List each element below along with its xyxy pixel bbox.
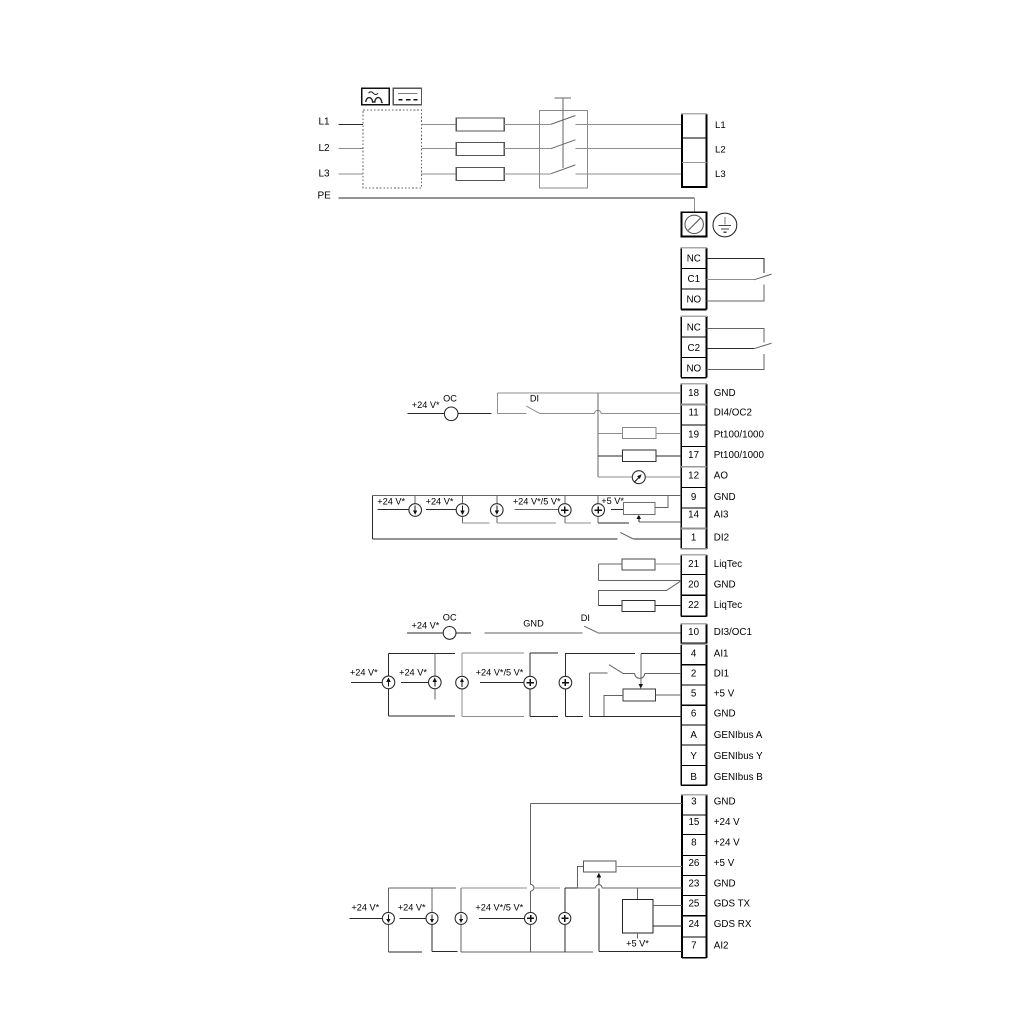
svg-text:+24 V*/5 V*: +24 V*/5 V* bbox=[475, 903, 523, 913]
svg-text:6: 6 bbox=[691, 709, 697, 720]
svg-text:GDS RX: GDS RX bbox=[714, 919, 752, 930]
svg-text:L2: L2 bbox=[715, 144, 726, 155]
svg-text:+24 V*: +24 V* bbox=[399, 668, 427, 678]
svg-text:21: 21 bbox=[688, 559, 699, 570]
svg-text:OC: OC bbox=[443, 394, 457, 404]
svg-text:GND: GND bbox=[523, 619, 544, 629]
svg-text:DI3/OC1: DI3/OC1 bbox=[714, 627, 752, 638]
svg-text:+5 V: +5 V bbox=[714, 688, 735, 699]
svg-text:DI1: DI1 bbox=[714, 669, 729, 680]
svg-text:20: 20 bbox=[688, 579, 699, 590]
svg-text:2: 2 bbox=[691, 669, 696, 680]
svg-text:DI: DI bbox=[581, 613, 590, 623]
svg-text:+24 V*: +24 V* bbox=[398, 903, 426, 913]
svg-text:A: A bbox=[690, 730, 697, 741]
svg-text:PE: PE bbox=[318, 191, 332, 202]
svg-text:Pt100/1000: Pt100/1000 bbox=[714, 450, 765, 461]
svg-text:23: 23 bbox=[688, 878, 699, 889]
svg-text:NC: NC bbox=[687, 323, 701, 334]
svg-text:15: 15 bbox=[688, 817, 699, 828]
svg-text:10: 10 bbox=[688, 627, 699, 638]
svg-text:LiqTec: LiqTec bbox=[714, 600, 742, 611]
svg-text:C1: C1 bbox=[688, 274, 701, 285]
svg-text:5: 5 bbox=[691, 688, 697, 699]
svg-text:+24 V*/5 V*: +24 V*/5 V* bbox=[513, 497, 561, 507]
svg-text:3: 3 bbox=[691, 797, 697, 808]
svg-text:+5 V: +5 V bbox=[714, 858, 735, 869]
svg-text:+5 V*: +5 V* bbox=[626, 939, 649, 949]
svg-text:14: 14 bbox=[688, 510, 699, 521]
svg-text:NC: NC bbox=[687, 253, 701, 264]
svg-text:GENIbus A: GENIbus A bbox=[714, 730, 763, 741]
svg-text:17: 17 bbox=[688, 450, 699, 461]
svg-text:+24 V: +24 V bbox=[714, 817, 740, 828]
svg-text:22: 22 bbox=[688, 600, 699, 611]
svg-text:AI1: AI1 bbox=[714, 649, 729, 660]
svg-text:4: 4 bbox=[691, 649, 697, 660]
svg-text:Y: Y bbox=[690, 751, 697, 762]
svg-text:L3: L3 bbox=[319, 169, 331, 180]
svg-text:DI: DI bbox=[530, 394, 539, 404]
svg-text:+24 V*: +24 V* bbox=[411, 621, 439, 631]
svg-text:24: 24 bbox=[688, 919, 699, 930]
svg-text:+24 V*: +24 V* bbox=[350, 668, 378, 678]
svg-text:NO: NO bbox=[686, 294, 701, 305]
svg-text:AI2: AI2 bbox=[714, 940, 729, 951]
svg-text:+24 V*: +24 V* bbox=[426, 497, 454, 507]
svg-text:11: 11 bbox=[689, 408, 699, 419]
svg-text:18: 18 bbox=[688, 388, 699, 399]
svg-text:Pt100/1000: Pt100/1000 bbox=[714, 429, 765, 440]
svg-text:L1: L1 bbox=[319, 116, 331, 127]
svg-text:+24 V: +24 V bbox=[714, 837, 740, 848]
svg-text:AI3: AI3 bbox=[714, 510, 729, 521]
svg-text:GENIbus B: GENIbus B bbox=[714, 772, 763, 783]
svg-text:8: 8 bbox=[691, 837, 697, 848]
svg-text:L1: L1 bbox=[715, 120, 726, 131]
svg-text:+24 V*: +24 V* bbox=[412, 400, 440, 410]
svg-text:25: 25 bbox=[688, 899, 699, 910]
svg-text:B: B bbox=[690, 772, 697, 783]
svg-text:+24 V*: +24 V* bbox=[351, 903, 379, 913]
svg-text:GND: GND bbox=[714, 878, 736, 889]
svg-text:NO: NO bbox=[686, 363, 701, 374]
svg-text:OC: OC bbox=[443, 613, 457, 623]
svg-text:GND: GND bbox=[714, 579, 736, 590]
svg-text:GDS TX: GDS TX bbox=[714, 899, 751, 910]
svg-text:GND: GND bbox=[714, 492, 736, 503]
svg-text:L3: L3 bbox=[715, 169, 726, 180]
svg-text:GND: GND bbox=[714, 388, 736, 399]
svg-text:L2: L2 bbox=[319, 143, 331, 154]
svg-text:GND: GND bbox=[714, 797, 736, 808]
svg-text:+24 V*: +24 V* bbox=[377, 497, 405, 507]
svg-text:DI2: DI2 bbox=[714, 532, 729, 543]
svg-text:DI4/OC2: DI4/OC2 bbox=[714, 408, 752, 419]
svg-text:1: 1 bbox=[691, 532, 696, 543]
svg-text:19: 19 bbox=[688, 429, 699, 440]
svg-text:7: 7 bbox=[691, 940, 696, 951]
svg-text:9: 9 bbox=[691, 492, 696, 503]
svg-text:GENIbus Y: GENIbus Y bbox=[714, 751, 763, 762]
svg-text:GND: GND bbox=[714, 709, 736, 720]
svg-text:AO: AO bbox=[714, 471, 729, 482]
svg-text:12: 12 bbox=[688, 471, 699, 482]
svg-text:C2: C2 bbox=[688, 343, 701, 354]
svg-text:LiqTec: LiqTec bbox=[714, 559, 742, 570]
svg-text:26: 26 bbox=[688, 858, 699, 869]
svg-text:+5 V*: +5 V* bbox=[601, 496, 624, 506]
svg-text:+24 V*/5 V*: +24 V*/5 V* bbox=[476, 668, 524, 678]
